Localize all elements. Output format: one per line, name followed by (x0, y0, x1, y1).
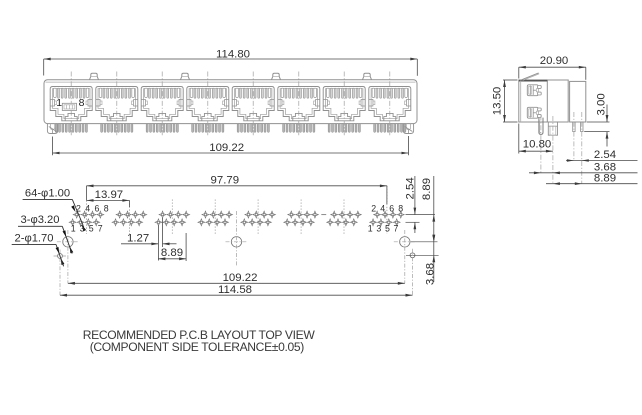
svg-text:3-φ3.20: 3-φ3.20 (21, 214, 60, 226)
svg-text:109.22: 109.22 (223, 272, 258, 284)
svg-text:13.50: 13.50 (492, 87, 504, 116)
svg-text:2.54: 2.54 (594, 149, 616, 161)
svg-text:8: 8 (79, 97, 85, 109)
svg-text:8.89: 8.89 (421, 178, 433, 200)
svg-text:5: 5 (89, 224, 94, 234)
svg-text:2: 2 (371, 203, 376, 213)
svg-text:2: 2 (76, 203, 81, 213)
svg-text:10.80: 10.80 (523, 139, 552, 151)
svg-text:6: 6 (389, 203, 394, 213)
svg-text:109.22: 109.22 (209, 142, 244, 154)
svg-text:1: 1 (71, 224, 76, 234)
svg-text:3.68: 3.68 (424, 263, 436, 285)
svg-text:20.90: 20.90 (540, 55, 569, 67)
svg-text:7: 7 (98, 224, 103, 234)
svg-text:1.27: 1.27 (127, 233, 149, 245)
svg-text:114.80: 114.80 (216, 48, 250, 60)
svg-text:4: 4 (85, 203, 90, 213)
svg-text:(COMPONENT SIDE TOLERANCE±0.05: (COMPONENT SIDE TOLERANCE±0.05) (90, 340, 305, 354)
svg-text:64-φ1.00: 64-φ1.00 (25, 188, 70, 200)
svg-text:114.58: 114.58 (218, 284, 252, 296)
svg-text:13.97: 13.97 (95, 189, 124, 201)
svg-text:3.00: 3.00 (596, 93, 608, 115)
svg-text:5: 5 (385, 224, 390, 234)
svg-text:2.54: 2.54 (405, 177, 417, 199)
svg-text:97.79: 97.79 (211, 175, 240, 187)
svg-text:8: 8 (398, 203, 403, 213)
svg-text:8: 8 (104, 203, 109, 213)
svg-text:2-φ1.70: 2-φ1.70 (15, 232, 54, 244)
svg-text:8.89: 8.89 (594, 172, 616, 184)
svg-text:4: 4 (380, 203, 385, 213)
svg-text:3: 3 (376, 224, 381, 234)
svg-text:7: 7 (394, 224, 399, 234)
svg-text:8.89: 8.89 (161, 247, 183, 259)
svg-text:1: 1 (56, 97, 62, 109)
svg-text:6: 6 (94, 203, 99, 213)
svg-text:1: 1 (368, 224, 373, 234)
